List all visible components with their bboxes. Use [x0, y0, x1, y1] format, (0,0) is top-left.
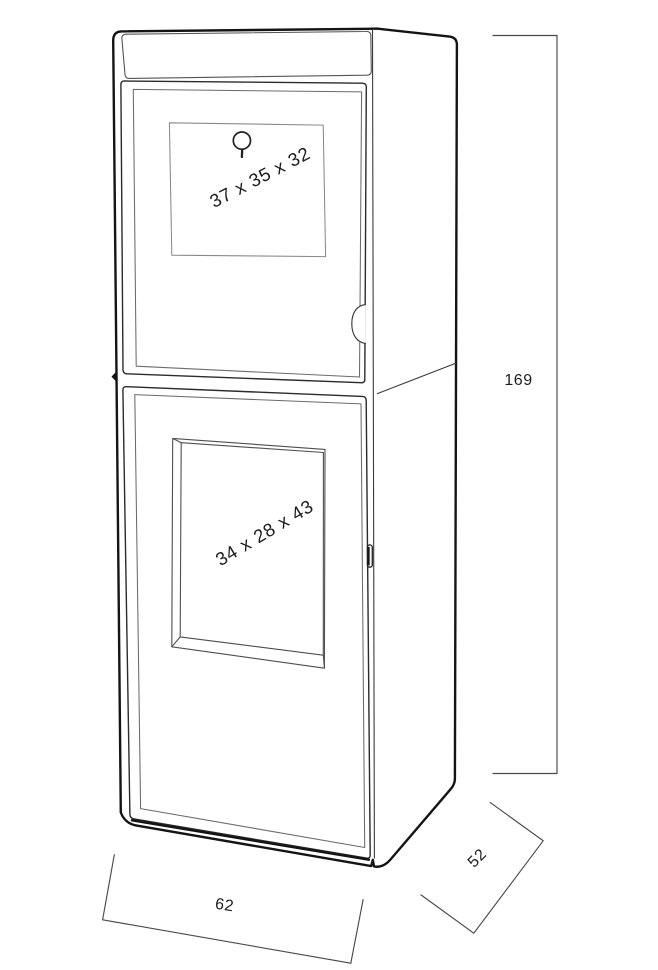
lower-door: [123, 387, 370, 859]
left-edge-divider-notch: [112, 372, 117, 382]
width-dimension-label: 62: [214, 896, 235, 916]
depth-dimension-line: [421, 802, 544, 933]
top-lid: [122, 31, 371, 78]
depth-dimension-label: 52: [465, 846, 490, 871]
door-latch: [367, 545, 372, 567]
diagram-canvas: 37 x 35 x 32 34 x 28 x 43 169 52: [0, 0, 658, 970]
height-dimension-line: [493, 36, 558, 774]
parcel-locker-dimension-diagram: 37 x 35 x 32 34 x 28 x 43 169 52: [0, 0, 658, 970]
height-dimension-label: 169: [504, 372, 532, 389]
